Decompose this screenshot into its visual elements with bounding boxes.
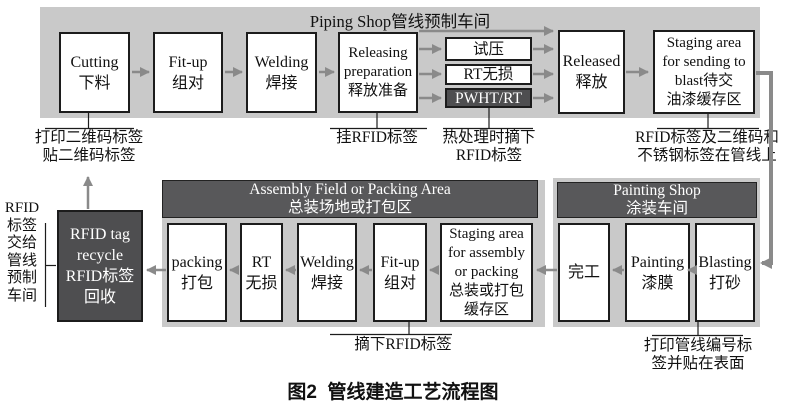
process-flow-figure: Piping Shop管线预制车间 Assembly Field or Pack…	[0, 0, 786, 406]
box-cutting: Cutting 下料	[59, 32, 130, 113]
box-pressure-test: 试压	[445, 37, 532, 61]
box-rt-ndt: RT无损	[445, 64, 532, 85]
assembly-area-banner: Assembly Field or Packing Area 总装场地或打包区	[162, 180, 538, 218]
note-print-pipe-number: 打印管线编号标 签并贴在表面	[628, 337, 768, 373]
box-rfid-recycle: RFID tag recycle RFID标签 回收	[57, 210, 143, 322]
box-staging-blast: Staging area for sending to blast待交 油漆缓存…	[653, 30, 755, 114]
note-print-qr: 打印二维码标签 贴二维码标签	[18, 129, 160, 165]
box-rt2: RT 无损	[240, 223, 283, 322]
box-releasing-preparation: Releasing preparation 释放准备	[338, 32, 418, 113]
note-remove-rfid: 摘下RFID标签	[337, 336, 469, 354]
box-welding: Welding 焊接	[246, 32, 317, 113]
box-blasting: Blasting 打砂	[695, 223, 755, 322]
box-fit-up: Fit-up 组对	[153, 32, 223, 113]
box-painting: Painting 漆膜	[625, 223, 690, 322]
box-welding2: Welding 焊接	[297, 223, 357, 322]
box-fit-up2: Fit-up 组对	[373, 223, 427, 322]
note-rfid-to-shop: RFID 标签 交给 管线 预制 车间	[2, 200, 42, 305]
note-labels-on-pipe: RFID标签及二维码和 不锈钢标签在管线上	[628, 129, 786, 165]
box-done: 完工	[558, 223, 610, 322]
note-heat-remove-rfid: 热处理时摘下 RFID标签	[428, 129, 550, 165]
figure-caption: 图2 管线建造工艺流程图	[0, 377, 786, 404]
note-hang-rfid: 挂RFID标签	[317, 129, 437, 147]
piping-shop-title: Piping Shop管线预制车间	[40, 8, 760, 32]
painting-shop-banner: Painting Shop 涂装车间	[557, 182, 757, 218]
box-pwht-rt: PWHT/RT	[445, 88, 532, 108]
box-released: Released 释放	[558, 30, 625, 114]
box-staging-assembly: Staging area for assembly or packing 总装或…	[440, 223, 533, 322]
box-packing: packing 打包	[167, 223, 227, 322]
